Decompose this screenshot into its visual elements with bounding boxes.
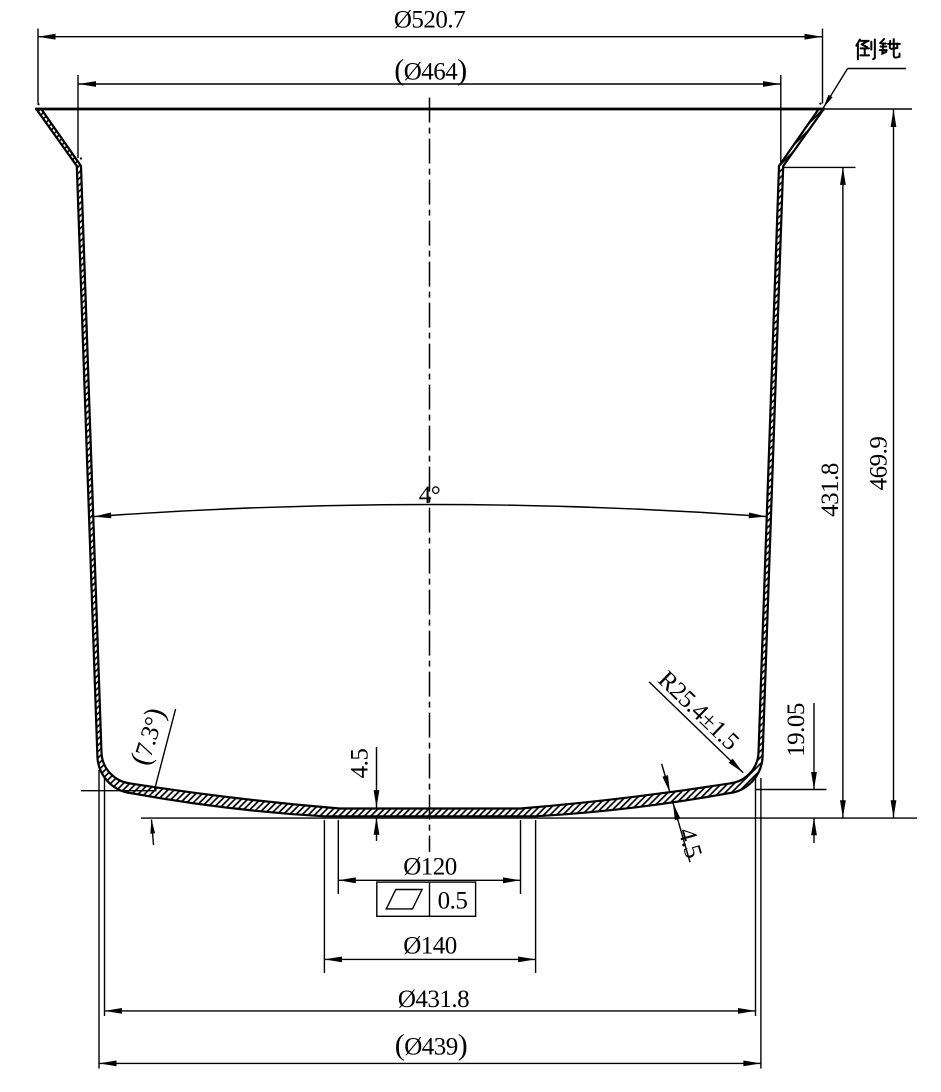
svg-text:(Ø464): (Ø464) (394, 54, 467, 87)
svg-text:0.5: 0.5 (438, 888, 468, 915)
svg-text:(Ø439): (Ø439) (395, 1029, 468, 1062)
svg-text:431.8: 431.8 (817, 463, 844, 517)
svg-text:19.05: 19.05 (783, 703, 810, 757)
svg-text:Ø140: Ø140 (403, 932, 457, 959)
svg-text:Ø520.7: Ø520.7 (394, 7, 465, 34)
svg-text:Ø120: Ø120 (403, 853, 457, 880)
svg-text:4°: 4° (419, 482, 441, 509)
svg-text:4.5: 4.5 (347, 749, 374, 779)
svg-text:469.9: 469.9 (866, 437, 893, 491)
svg-text:Ø431.8: Ø431.8 (398, 986, 469, 1013)
